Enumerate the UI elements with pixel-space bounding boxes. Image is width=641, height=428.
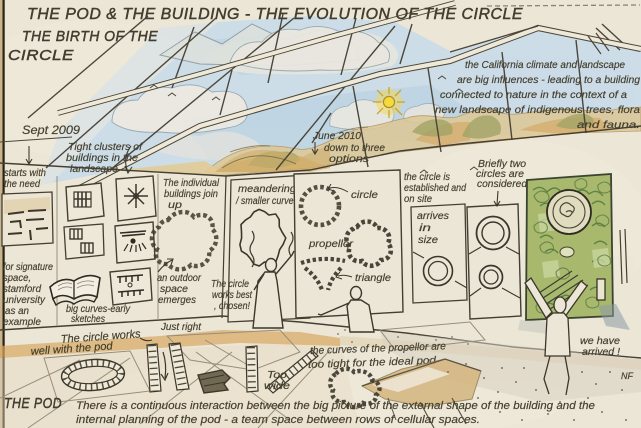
svg-text:June 2010: June 2010 <box>312 130 361 142</box>
svg-text:are big influences - leading t: are big influences - leading to a buildi… <box>457 75 640 86</box>
svg-text:the need: the need <box>4 179 40 190</box>
svg-text:wide: wide <box>264 381 291 392</box>
svg-text:in: in <box>419 223 432 234</box>
svg-text:emerges: emerges <box>158 295 196 306</box>
svg-text:new landscape of indigenous tr: new landscape of indigenous trees, flora <box>435 105 640 116</box>
svg-text:internal planning of the pod -: internal planning of the pod - a team sp… <box>76 414 480 426</box>
svg-text:established and: established and <box>404 183 466 194</box>
svg-text:circle: circle <box>351 189 378 201</box>
svg-text:The individual: The individual <box>163 178 220 189</box>
svg-text:THE BIRTH OF THE: THE BIRTH OF THE <box>22 28 158 45</box>
svg-text:buildings in the: buildings in the <box>66 153 138 164</box>
svg-text:buildings join: buildings join <box>164 189 218 200</box>
svg-text:triangle: triangle <box>355 272 391 284</box>
svg-text:, chosen!: , chosen! <box>214 301 250 312</box>
svg-text:for signature: for signature <box>3 262 53 273</box>
svg-text:as an: as an <box>5 306 29 317</box>
svg-text:NF: NF <box>621 371 633 381</box>
svg-text:THE POD & THE BUILDING - THE E: THE POD & THE BUILDING - THE EVOLUTION O… <box>27 6 523 23</box>
svg-text:up: up <box>168 200 183 211</box>
svg-text:works best: works best <box>212 290 253 301</box>
svg-text:sketches: sketches <box>71 314 105 325</box>
svg-text:Too: Too <box>267 370 288 381</box>
svg-text:on site: on site <box>404 194 432 205</box>
svg-text:the California climate and lan: the California climate and landscape <box>465 60 625 71</box>
svg-text:university: university <box>3 295 46 306</box>
svg-text:The circle: The circle <box>211 279 249 290</box>
svg-text:stamford: stamford <box>3 284 41 295</box>
svg-text:THE POD: THE POD <box>4 396 62 412</box>
svg-text:considered: considered <box>477 179 527 190</box>
svg-text:arrived !: arrived ! <box>582 346 620 358</box>
svg-text:/ smaller curves: / smaller curves <box>235 196 298 207</box>
svg-text:meandering: meandering <box>238 184 296 195</box>
svg-text:starts with: starts with <box>4 168 46 179</box>
svg-text:an outdoor: an outdoor <box>157 273 202 284</box>
svg-text:space: space <box>160 284 188 295</box>
svg-text:Sept 2009: Sept 2009 <box>22 123 80 137</box>
svg-text:CIRCLE: CIRCLE <box>8 47 75 64</box>
svg-text:Tight clusters of: Tight clusters of <box>68 142 143 153</box>
svg-text:There is a continuous interact: There is a continuous interaction betwee… <box>76 400 595 412</box>
svg-text:Just right: Just right <box>160 322 202 333</box>
svg-text:size: size <box>418 235 438 246</box>
svg-text:arrives: arrives <box>417 211 449 222</box>
svg-text:connected to nature in the con: connected to nature in the context of a <box>440 90 627 101</box>
svg-text:landscape: landscape <box>70 164 118 175</box>
svg-text:space,: space, <box>3 273 31 284</box>
svg-text:the circle is: the circle is <box>404 172 450 183</box>
svg-text:propellor: propellor <box>308 238 354 250</box>
svg-text:example: example <box>3 317 41 328</box>
